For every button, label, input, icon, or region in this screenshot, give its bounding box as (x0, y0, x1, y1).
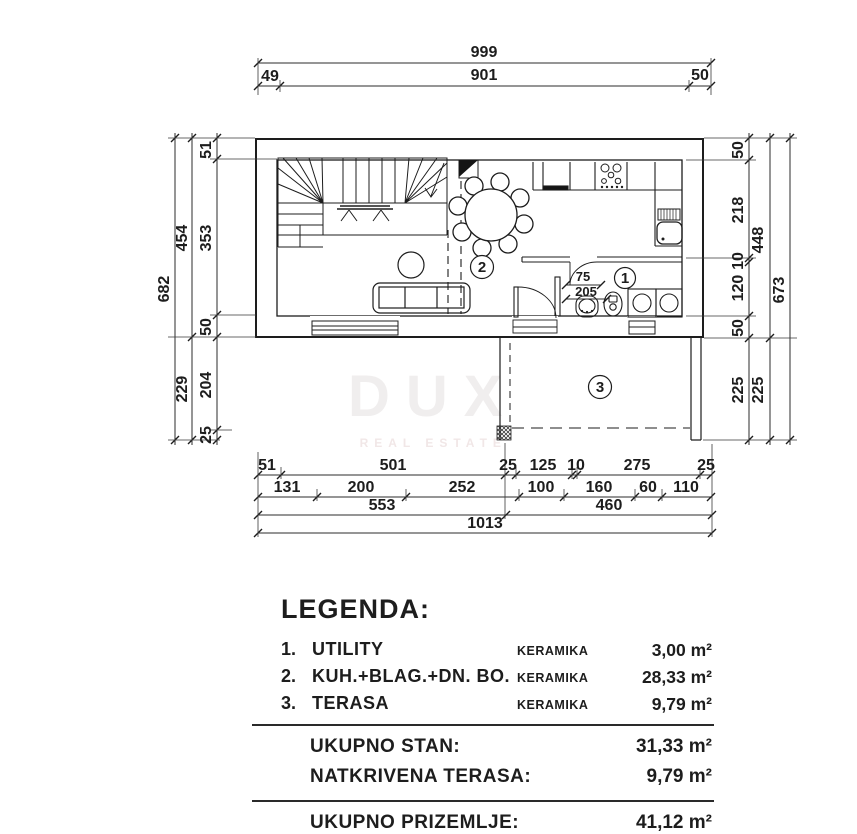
total-value: 9,79 m² (647, 766, 712, 788)
legend-item-material: KERAMIKA (517, 644, 588, 658)
legend: LEGENDA: 1. UTILITY KERAMIKA 3,00 m² 2. … (252, 594, 714, 834)
legend-item-material: KERAMIKA (517, 698, 588, 712)
dim-left: 25 (198, 426, 215, 444)
legend-item-area: 9,79 m² (652, 694, 712, 715)
legend-divider (252, 724, 714, 726)
total-label: UKUPNO PRIZEMLJE: (310, 812, 519, 834)
legend-item-number: 2. (281, 666, 296, 687)
toilet (604, 292, 622, 316)
dim-right: 448 (750, 227, 767, 254)
legend-item-utility: 1. UTILITY KERAMIKA 3,00 m² (252, 639, 714, 666)
utility-window (627, 316, 657, 334)
total-covered-terrace: NATKRIVENA TERASA: 9,79 m² (252, 766, 714, 796)
dim-bottom3: 553 (369, 497, 396, 514)
legend-title: LEGENDA: (281, 594, 714, 625)
dim-top-right: 50 (691, 67, 709, 84)
dim-inner: 205 (575, 284, 597, 299)
legend-divider (252, 800, 714, 802)
legend-item-name: UTILITY (312, 639, 384, 660)
dim-left: 51 (198, 141, 215, 159)
total-value: 31,33 m² (636, 736, 712, 758)
dim-left: 204 (198, 372, 215, 399)
legend-item-terrace: 3. TERASA KERAMIKA 9,79 m² (252, 693, 714, 720)
legend-item-area: 3,00 m² (652, 640, 712, 661)
dim-bottom2: 252 (449, 479, 476, 496)
dim-bottom2: 60 (639, 479, 657, 496)
washing-machines (628, 289, 682, 317)
room-label-3: 3 (589, 376, 612, 399)
dim-right: 50 (730, 319, 747, 337)
dim-left: 454 (174, 225, 191, 252)
dim-left: 682 (156, 276, 173, 303)
dimension-labels: 999 49 901 50 682 454 229 51 353 50 204 … (156, 44, 788, 532)
dim-bottom4: 1013 (467, 515, 503, 532)
dim-bottom1: 125 (530, 457, 557, 474)
legend-item-name: KUH.+BLAG.+DN. BO. (312, 666, 510, 687)
bench-under-stairs (337, 206, 393, 221)
dim-right: 10 (730, 252, 747, 270)
side-table (398, 252, 424, 278)
total-ground-floor: UKUPNO PRIZEMLJE: 41,12 m² (252, 812, 714, 834)
living-room-window (310, 316, 400, 335)
dim-bottom1: 10 (567, 457, 585, 474)
room-number: 1 (621, 270, 629, 287)
dim-bottom2: 200 (348, 479, 375, 496)
dim-right: 673 (771, 277, 788, 304)
legend-item-name: TERASA (312, 693, 389, 714)
dim-bottom1: 25 (499, 457, 517, 474)
dim-right: 218 (730, 197, 747, 224)
dim-right: 50 (730, 141, 747, 159)
dim-right: 225 (730, 377, 747, 404)
dim-left: 229 (174, 376, 191, 403)
cooktop (601, 164, 623, 188)
legend-item-material: KERAMIKA (517, 671, 588, 685)
floor-plan-page: DUX REAL ESTATE (0, 0, 857, 834)
total-value: 41,12 m² (636, 812, 712, 834)
entrance-door (512, 287, 558, 334)
legend-item-area: 28,33 m² (642, 667, 712, 688)
dim-bottom1: 51 (258, 457, 276, 474)
dim-bottom1: 25 (697, 457, 715, 474)
room-label-2: 2 (471, 256, 494, 279)
dim-bottom1: 275 (624, 457, 651, 474)
room-number: 3 (596, 379, 604, 396)
dim-right: 225 (750, 377, 767, 404)
interior-partitions (522, 257, 682, 316)
dim-bottom1: 501 (380, 457, 407, 474)
dim-top-mid: 901 (471, 67, 498, 84)
legend-item-number: 3. (281, 693, 296, 714)
sofa (373, 283, 470, 313)
dim-top-total: 999 (471, 44, 498, 61)
legend-item-kitchen-living: 2. KUH.+BLAG.+DN. BO. KERAMIKA 28,33 m² (252, 666, 714, 693)
section-marker (459, 160, 478, 178)
total-label: UKUPNO STAN: (310, 736, 460, 758)
staircase (278, 158, 447, 247)
total-label: NATKRIVENA TERASA: (310, 766, 531, 788)
kitchen-sink (657, 209, 682, 244)
dim-left: 353 (198, 225, 215, 252)
dim-bottom3: 460 (596, 497, 623, 514)
dining-table (449, 173, 533, 257)
kitchen-counter (533, 162, 682, 246)
legend-item-number: 1. (281, 639, 296, 660)
dim-right: 120 (730, 275, 747, 302)
dim-bottom2: 100 (528, 479, 555, 496)
dim-bottom2: 131 (274, 479, 301, 496)
dim-top-left: 49 (261, 68, 279, 85)
dim-bottom2: 160 (586, 479, 613, 496)
dim-inner: 75 (576, 269, 590, 284)
dim-bottom2: 110 (673, 479, 699, 496)
total-apartment: UKUPNO STAN: 31,33 m² (252, 736, 714, 766)
dim-left: 50 (198, 318, 215, 336)
room-number: 2 (478, 259, 486, 276)
room-label-1: 1 (615, 268, 636, 289)
